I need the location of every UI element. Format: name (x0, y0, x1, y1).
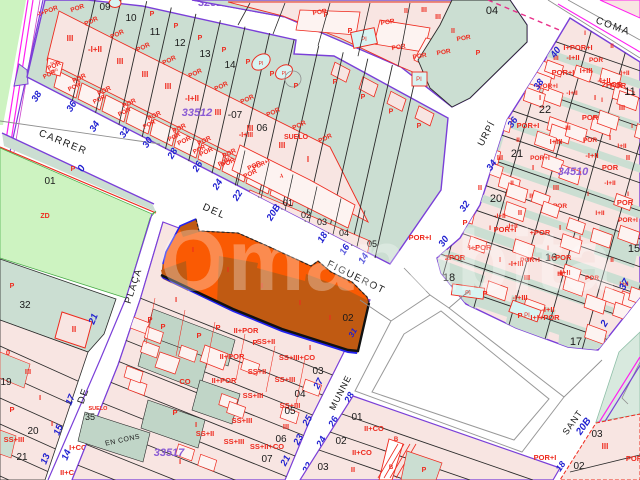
svg-text:P: P (71, 166, 76, 173)
svg-text:III: III (435, 14, 441, 21)
svg-text:P: P (270, 71, 275, 78)
svg-text:20: 20 (27, 426, 39, 437)
svg-text:ZD: ZD (40, 213, 49, 220)
svg-text:P: P (348, 28, 353, 35)
svg-text:POR: POR (582, 113, 599, 122)
svg-text:13: 13 (199, 49, 211, 60)
svg-text:B: B (394, 437, 399, 443)
svg-text:I: I (195, 420, 197, 429)
svg-text:I: I (532, 163, 534, 172)
svg-text:I: I (539, 93, 541, 102)
svg-text:I+II: I+II (617, 143, 626, 150)
svg-text:SS+III: SS+III (275, 375, 296, 384)
svg-text:III: III (619, 103, 625, 112)
svg-text:P: P (389, 108, 394, 115)
svg-text:III: III (117, 57, 124, 66)
svg-text:SS+III: SS+III (224, 437, 245, 446)
svg-text:32: 32 (19, 300, 31, 311)
svg-text:P: P (476, 50, 481, 57)
svg-text:22: 22 (539, 104, 551, 116)
svg-text:POR+I: POR+I (552, 68, 575, 77)
svg-text:-I+II: -I+II (566, 53, 579, 62)
svg-text:P: P (333, 79, 338, 86)
svg-text:06: 06 (256, 123, 268, 134)
svg-text:POR+I: POR+I (517, 121, 540, 130)
svg-text:03: 03 (591, 429, 603, 440)
svg-text:POR+I: POR+I (530, 155, 550, 162)
svg-text:III: III (565, 125, 571, 132)
svg-text:II: II (516, 137, 520, 144)
svg-text:I: I (584, 30, 586, 37)
svg-text:0: 0 (6, 348, 10, 357)
svg-text:11: 11 (150, 27, 161, 38)
svg-text:II+CO: II+CO (364, 424, 384, 433)
svg-text:I: I (609, 133, 611, 142)
svg-text:P: P (10, 283, 15, 290)
svg-text:-I+II: -I+II (185, 94, 199, 103)
svg-text:POR: POR (583, 137, 597, 144)
svg-text:POR: POR (589, 57, 603, 64)
svg-text:-07: -07 (228, 110, 243, 121)
svg-text:05: 05 (284, 406, 296, 417)
svg-text:02: 02 (335, 436, 347, 447)
svg-text:III: III (215, 108, 222, 117)
svg-text:21: 21 (16, 452, 28, 463)
svg-text:III: III (279, 141, 286, 150)
svg-text:02: 02 (342, 313, 354, 324)
svg-text:P: P (150, 11, 155, 18)
svg-text:PI: PI (416, 77, 422, 83)
svg-text:02: 02 (573, 461, 585, 472)
svg-text:SS+III: SS+III (232, 416, 253, 425)
svg-text:17: 17 (570, 336, 582, 348)
svg-text:01: 01 (44, 176, 56, 187)
svg-text:I: I (39, 393, 41, 402)
svg-text:POR+I: POR+I (618, 217, 638, 224)
svg-text:35: 35 (85, 412, 95, 422)
svg-text:19: 19 (0, 377, 12, 388)
svg-text:-I+III: -I+III (239, 132, 253, 139)
svg-text:-I+II: -I+II (604, 180, 616, 187)
svg-text:P: P (215, 323, 220, 332)
svg-text:I+III: I+III (580, 66, 593, 75)
svg-text:PI: PI (282, 71, 287, 77)
svg-text:III: III (67, 34, 74, 43)
svg-text:14: 14 (224, 60, 236, 71)
svg-text:CO: CO (179, 377, 190, 386)
svg-text:II: II (478, 183, 482, 192)
svg-text:I+II: I+II (620, 70, 629, 77)
svg-text:SS+II: SS+II (196, 429, 215, 438)
svg-text:I: I (587, 191, 589, 198)
svg-text:POR: POR (626, 454, 640, 463)
svg-text:P: P (9, 405, 14, 414)
svg-text:I+POR+I: I+POR+I (563, 43, 592, 52)
svg-text:II+POR: II+POR (220, 352, 245, 361)
svg-text:20: 20 (490, 193, 502, 205)
svg-text:I: I (594, 93, 596, 102)
svg-text:-I+II: -I+II (585, 151, 598, 160)
svg-text:SUELO: SUELO (284, 134, 309, 141)
svg-text:P: P (361, 94, 366, 101)
svg-text:II: II (610, 43, 614, 50)
svg-text:SS+II: SS+II (248, 367, 267, 376)
svg-text:SUELO: SUELO (89, 406, 109, 412)
svg-text:I: I (309, 343, 311, 352)
svg-text:21: 21 (511, 148, 523, 160)
svg-text:P: P (174, 23, 179, 30)
svg-text:III: III (247, 124, 254, 133)
svg-text:I: I (51, 419, 53, 428)
svg-text:III: III (553, 183, 559, 192)
svg-text:07: 07 (261, 454, 273, 465)
svg-text:03: 03 (317, 462, 329, 473)
svg-text:II: II (404, 8, 408, 15)
svg-text:II: II (72, 325, 76, 334)
svg-text:-I+II: -I+II (566, 90, 578, 97)
svg-text:P: P (196, 331, 201, 340)
svg-text:POR: POR (610, 81, 627, 90)
svg-text:33517: 33517 (154, 447, 185, 459)
svg-text:I+III: I+III (550, 137, 563, 146)
svg-text:PI: PI (524, 313, 530, 319)
svg-text:34510: 34510 (558, 166, 589, 178)
svg-text:POR: POR (602, 163, 619, 172)
svg-text:SS+III: SS+III (243, 391, 264, 400)
svg-text:I: I (601, 97, 603, 104)
svg-text:SS+II: SS+II (257, 337, 276, 346)
svg-text:II: II (351, 465, 355, 474)
svg-text:04: 04 (486, 5, 498, 17)
svg-text:10: 10 (125, 13, 137, 24)
svg-text:III: III (602, 442, 609, 451)
svg-text:SS+III+CO: SS+III+CO (279, 353, 315, 362)
svg-text:P: P (147, 315, 152, 324)
svg-text:SS+III: SS+III (4, 435, 25, 444)
svg-text:03: 03 (312, 366, 324, 377)
svg-text:III: III (165, 82, 172, 91)
svg-text:-I+II: -I+II (88, 45, 102, 54)
svg-text:P: P (422, 467, 427, 474)
svg-text:III: III (283, 422, 289, 431)
svg-text:P: P (252, 338, 257, 347)
svg-text:III: III (421, 7, 427, 14)
svg-text:P: P (294, 83, 299, 90)
svg-text:II: II (626, 153, 630, 162)
svg-text:B: B (389, 465, 394, 471)
svg-text:P: P (246, 59, 251, 66)
svg-text:I: I (627, 191, 629, 198)
svg-text:I: I (307, 155, 309, 164)
svg-text:09: 09 (99, 2, 111, 13)
svg-text:06: 06 (275, 434, 287, 445)
svg-text:POR: POR (617, 198, 634, 207)
svg-text:01: 01 (283, 198, 293, 208)
svg-text:I+I+POR: I+I+POR (530, 313, 560, 322)
svg-text:P: P (517, 311, 522, 320)
svg-text:01: 01 (351, 412, 363, 423)
svg-text:II: II (451, 28, 455, 35)
svg-text:I: I (329, 315, 331, 322)
svg-text:I: I (631, 123, 633, 130)
svg-text:P: P (160, 322, 165, 331)
svg-text:III: III (25, 367, 31, 376)
svg-text:P: P (417, 123, 422, 130)
svg-text:P: P (172, 408, 177, 417)
svg-text:Omanabita: Omanabita (160, 213, 614, 309)
svg-text:12: 12 (174, 38, 186, 49)
svg-text:04: 04 (294, 389, 306, 400)
svg-text:II: II (510, 180, 514, 187)
svg-text:33512: 33512 (182, 107, 213, 119)
svg-text:15: 15 (628, 243, 640, 255)
svg-text:P: P (198, 35, 203, 42)
svg-text:III: III (497, 153, 503, 162)
svg-text:III: III (142, 70, 149, 79)
svg-text:II+POR: II+POR (234, 326, 259, 335)
svg-text:PI: PI (259, 61, 264, 67)
svg-text:POR+I: POR+I (534, 453, 557, 462)
svg-text:II+POR: II+POR (212, 376, 237, 385)
svg-text:II+CO: II+CO (352, 448, 372, 457)
svg-text:P: P (222, 47, 227, 54)
